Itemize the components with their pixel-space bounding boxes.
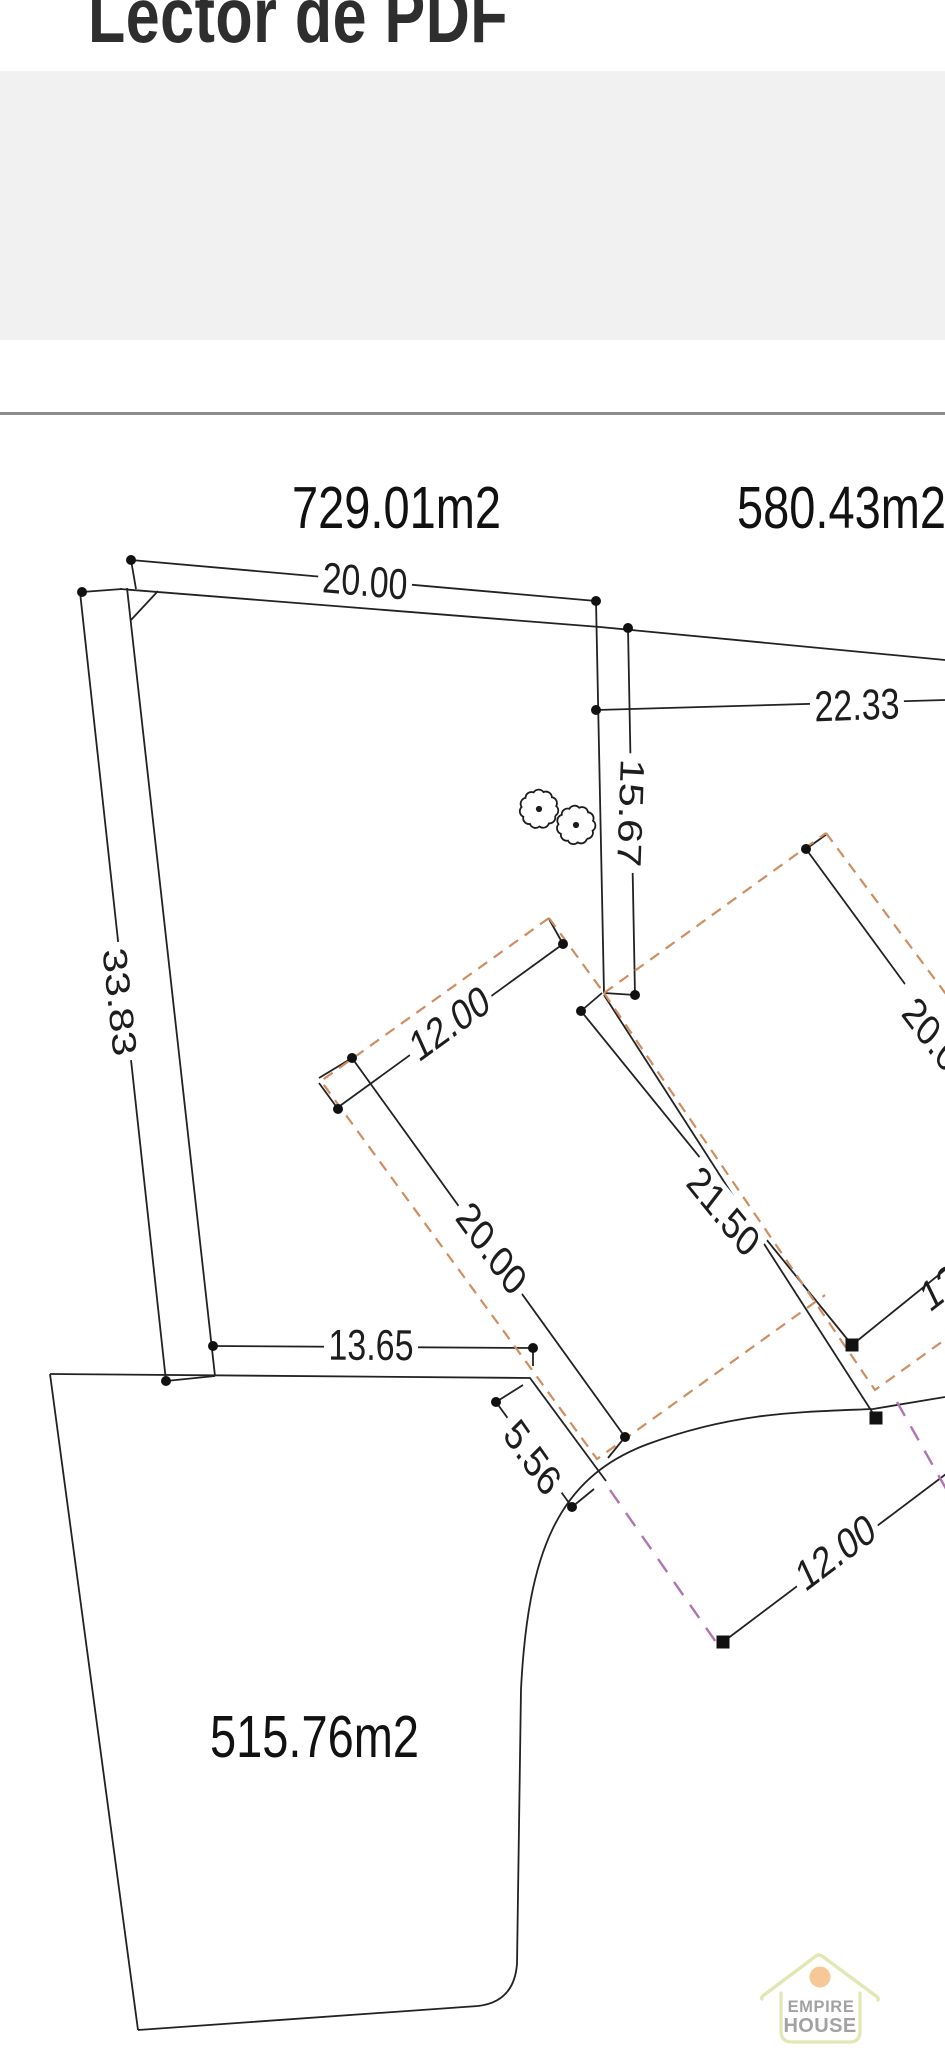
svg-text:20.00: 20.00	[321, 554, 409, 609]
svg-text:12.00: 12.00	[790, 1505, 882, 1601]
svg-text:33.83: 33.83	[95, 945, 144, 1058]
svg-text:HOUSE: HOUSE	[783, 2015, 856, 2037]
svg-text:EMPIRE: EMPIRE	[788, 1998, 855, 2016]
svg-text:12.00: 12.00	[914, 1224, 945, 1321]
svg-text:13.65: 13.65	[328, 1322, 413, 1370]
svg-text:515.76m2: 515.76m2	[210, 1704, 419, 1771]
svg-text:729.01m2: 729.01m2	[292, 475, 501, 542]
svg-text:580.43m2: 580.43m2	[737, 475, 945, 542]
svg-text:22.33: 22.33	[814, 681, 900, 732]
svg-text:15.67: 15.67	[609, 758, 650, 868]
svg-text:12.00: 12.00	[404, 976, 497, 1071]
